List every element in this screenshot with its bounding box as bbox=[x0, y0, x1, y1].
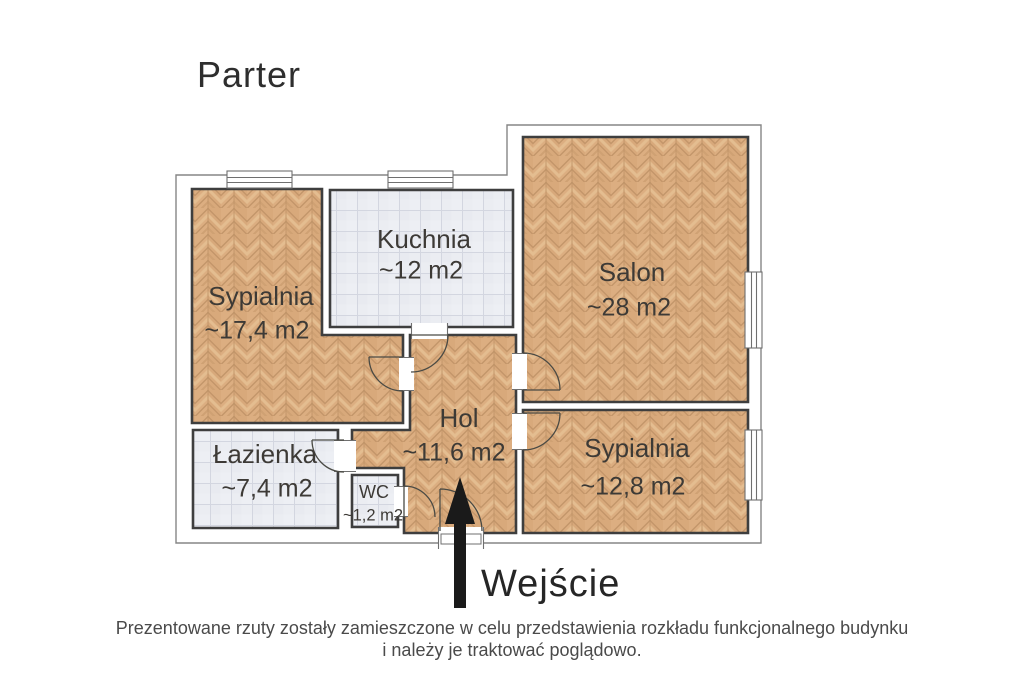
room-area-lazienka: ~7,4 m2 bbox=[221, 475, 312, 503]
window-symbol-sypialnia-1 bbox=[227, 171, 292, 188]
room-area-sypialnia-2: ~12,8 m2 bbox=[581, 473, 686, 501]
footer-line-2: i należy je traktować poglądowo. bbox=[0, 639, 1024, 661]
room-area-sypialnia-1: ~17,4 m2 bbox=[205, 317, 310, 345]
footer-disclaimer: Prezentowane rzuty zostały zamieszczone … bbox=[0, 617, 1024, 661]
room-label-hol: Hol bbox=[439, 403, 478, 433]
door-opening bbox=[512, 354, 527, 390]
room-label-wc: WC bbox=[359, 482, 389, 502]
entrance-label: Wejście bbox=[481, 563, 620, 606]
room-label-kuchnia: Kuchnia bbox=[377, 224, 471, 254]
door-opening bbox=[399, 358, 414, 391]
room-area-kuchnia: ~12 m2 bbox=[379, 257, 463, 285]
room-label-sypialnia-1: Sypialnia bbox=[208, 281, 314, 311]
room-label-sypialnia-2: Sypialnia bbox=[584, 433, 690, 463]
door-opening bbox=[412, 323, 448, 339]
floor-plan-page: Parter bbox=[0, 0, 1024, 683]
room-area-salon: ~28 m2 bbox=[587, 294, 671, 322]
room-area-wc: ~1,2 m2 bbox=[343, 506, 403, 524]
room-label-lazienka: Łazienka bbox=[213, 439, 318, 469]
room-area-hol: ~11,6 m2 bbox=[402, 439, 505, 467]
window-symbol-salon bbox=[745, 272, 762, 348]
window-symbol-kuchnia bbox=[388, 171, 453, 188]
door-opening bbox=[512, 414, 527, 450]
room-label-salon: Salon bbox=[599, 257, 666, 287]
footer-line-1: Prezentowane rzuty zostały zamieszczone … bbox=[0, 617, 1024, 639]
door-opening bbox=[334, 441, 356, 472]
window-symbol-sypialnia-2 bbox=[745, 430, 762, 500]
